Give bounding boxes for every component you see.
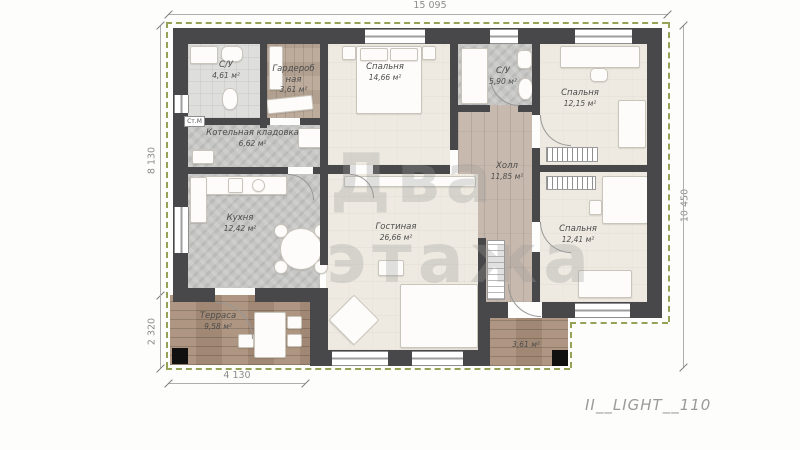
window-living-bottom-2 <box>412 351 463 366</box>
room-name: Гостиная <box>360 222 432 233</box>
room-area: 26,66 м² <box>360 233 432 242</box>
toilet-bath1 <box>222 88 238 110</box>
kitchen-chair-3 <box>274 260 288 274</box>
dim-left-upper-text: 8 130 <box>147 139 158 183</box>
coffee-table-living <box>378 260 404 276</box>
window-bedroom1-top <box>365 29 425 44</box>
room-area: 5,90 м² <box>473 77 533 86</box>
dresser-bedroom2 <box>618 100 646 148</box>
window-kitchen-left <box>174 207 189 253</box>
dim-right-line <box>683 25 684 367</box>
sofa-living <box>400 284 478 348</box>
dim-top-text: 15 095 <box>395 0 465 11</box>
wall-bath1-wardrobe <box>260 44 267 128</box>
dim-left-upper-line <box>160 25 161 295</box>
column-porch <box>552 350 568 366</box>
room-name: Кухня <box>205 213 275 224</box>
desk-bedroom2 <box>560 46 640 68</box>
room-area: 12,42 м² <box>205 224 275 233</box>
radiator-bedroom2 <box>546 147 598 162</box>
wall-entry-pier <box>478 302 490 366</box>
kitchen-counter <box>205 176 287 195</box>
dim-left-lower-text: 2 320 <box>147 310 158 354</box>
room-area: 12,41 м² <box>543 235 613 244</box>
site-boundary-step-v <box>570 322 572 368</box>
wall-left <box>173 28 188 302</box>
dim-bottom-line <box>168 383 306 384</box>
room-name: Гардеробная <box>270 64 317 85</box>
floor-plan-canvas: С/У 4,61 м² Гардеробная 3,61 м² Спальня … <box>0 0 800 450</box>
wall-boiler-bottom-1 <box>188 167 288 174</box>
dim-top-line <box>168 14 668 15</box>
wall-bedroom1-bottom-1 <box>326 165 350 174</box>
site-boundary-right <box>668 22 670 322</box>
site-boundary-left <box>166 22 168 368</box>
window-bedroom3-bottom <box>575 303 630 318</box>
room-name: С/У <box>473 66 533 77</box>
label-living-room: Гостиная 26,66 м² <box>360 222 432 242</box>
kitchen-sink <box>252 179 265 192</box>
nightstand-bedroom1-right <box>422 46 436 60</box>
label-bedroom-1: Спальня 14,66 м² <box>345 62 425 82</box>
room-area: 3,61 м² <box>498 340 554 349</box>
label-bedroom-3: Спальня 12,41 м² <box>543 224 613 244</box>
nightstand-bedroom3 <box>589 200 602 215</box>
washing-machine-tag: Ст.М <box>184 116 205 127</box>
room-area: 11,85 м² <box>478 172 536 181</box>
kitchen-chair-1 <box>274 224 288 238</box>
dim-left-lower-line <box>160 295 161 368</box>
bed-bedroom3 <box>602 176 648 224</box>
wall-bath2-bottom-2 <box>518 105 532 112</box>
room-name: Котельная кладовка <box>200 128 305 139</box>
label-boiler-room: Котельная кладовка 6,62 м² <box>200 128 305 148</box>
boiler-shelf <box>192 150 214 164</box>
wall-boiler-bottom-2 <box>313 167 326 174</box>
window-bedroom2-top <box>575 29 632 44</box>
room-name: Спальня <box>543 224 613 235</box>
column-terrace <box>172 348 188 364</box>
label-bathroom-2: С/У 5,90 м² <box>473 66 533 86</box>
room-name: Спальня <box>545 88 615 99</box>
room-name: С/У <box>196 60 256 71</box>
window-bath2-top <box>490 29 518 44</box>
wall-terrace-2 <box>255 288 310 302</box>
terrace-chair-1 <box>287 316 302 329</box>
terrace-table <box>254 312 286 358</box>
pillow-bedroom1-right <box>390 48 418 61</box>
wall-terrace-1 <box>173 288 215 302</box>
label-porch: 3,61 м² <box>498 340 554 349</box>
window-bath1-left <box>174 95 189 113</box>
pillow-bedroom1-left <box>360 48 388 61</box>
wall-wardrobe-bottom <box>300 118 326 125</box>
wall-bedroom1-right <box>450 44 458 150</box>
room-area: 9,58 м² <box>187 322 249 331</box>
site-boundary-top <box>166 22 668 24</box>
wall-bedrooms-divider <box>540 165 662 172</box>
kitchen-stove <box>228 178 243 193</box>
radiator-bedroom3 <box>546 176 596 190</box>
label-bedroom-2: Спальня 12,15 м² <box>545 88 615 108</box>
wall-spine-upper <box>320 44 328 265</box>
site-boundary-step-h <box>570 322 668 324</box>
window-living-bottom-1 <box>332 351 388 366</box>
wall-bedroom1-bottom-2 <box>373 165 450 174</box>
dresser-bedroom3 <box>578 270 632 298</box>
room-area: 12,15 м² <box>545 99 615 108</box>
label-terrace: Терраса 9,58 м² <box>187 311 249 331</box>
room-area: 4,61 м² <box>196 71 256 80</box>
room-area: 14,66 м² <box>345 73 425 82</box>
room-area: 3,61 м² <box>270 85 317 94</box>
label-hall: Холл 11,85 м² <box>478 161 536 181</box>
label-kitchen: Кухня 12,42 м² <box>205 213 275 233</box>
wall-bath2-bottom-1 <box>458 105 490 112</box>
chair-bedroom2 <box>590 68 608 82</box>
hall-closet <box>487 240 505 300</box>
dim-right-text: 10 450 <box>680 182 691 230</box>
wall-hall-right-2 <box>532 148 540 222</box>
room-area: 6,62 м² <box>200 139 305 148</box>
wall-hall-right-1 <box>532 44 540 115</box>
drawing-code: II__LIGHT__110 <box>585 396 711 414</box>
wall-hall-left-lower <box>478 238 486 302</box>
room-name: Спальня <box>345 62 425 73</box>
room-name: Холл <box>478 161 536 172</box>
dim-bottom-text: 4 130 <box>205 370 269 381</box>
door-entrance <box>508 284 541 317</box>
terrace-chair-2 <box>287 334 302 347</box>
label-wardrobe: Гардеробная 3,61 м² <box>270 64 317 95</box>
label-bathroom-1: С/У 4,61 м² <box>196 60 256 80</box>
nightstand-bedroom1-left <box>342 46 356 60</box>
room-name: Терраса <box>187 311 249 322</box>
wall-corner-pier <box>310 288 328 366</box>
wall-right <box>647 28 662 318</box>
